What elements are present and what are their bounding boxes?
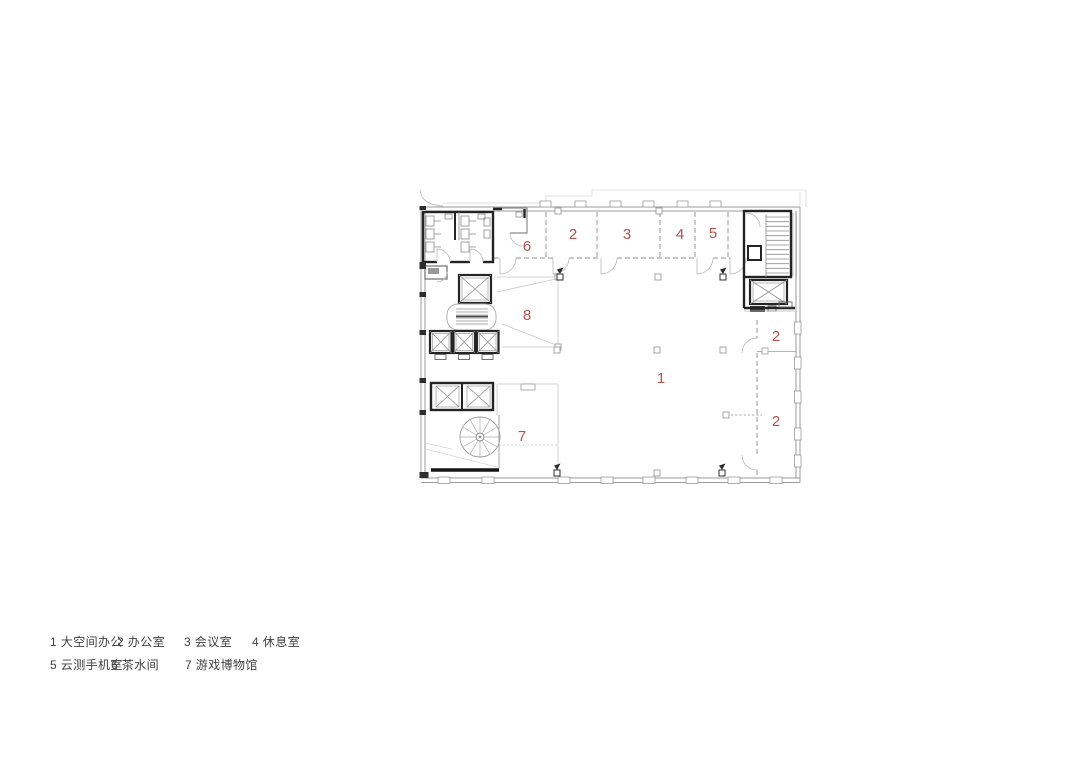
page: 6 2 3 4 5 8 1 2 2 7 1 大空间办公 2 办公室 3 会议室 … bbox=[0, 0, 1080, 764]
legend-item-7: 7 游戏博物馆 bbox=[185, 656, 258, 673]
legend-item-2: 2 办公室 bbox=[117, 633, 165, 650]
legend-item-6: 6 茶水间 bbox=[111, 656, 159, 673]
legend-item-4: 4 休息室 bbox=[252, 633, 300, 650]
legend-item-3: 3 会议室 bbox=[184, 633, 232, 650]
legend: 1 大空间办公 2 办公室 3 会议室 4 休息室 5 云测手机室 6 茶水间 … bbox=[0, 0, 1080, 764]
legend-item-1: 1 大空间办公 bbox=[50, 633, 123, 650]
